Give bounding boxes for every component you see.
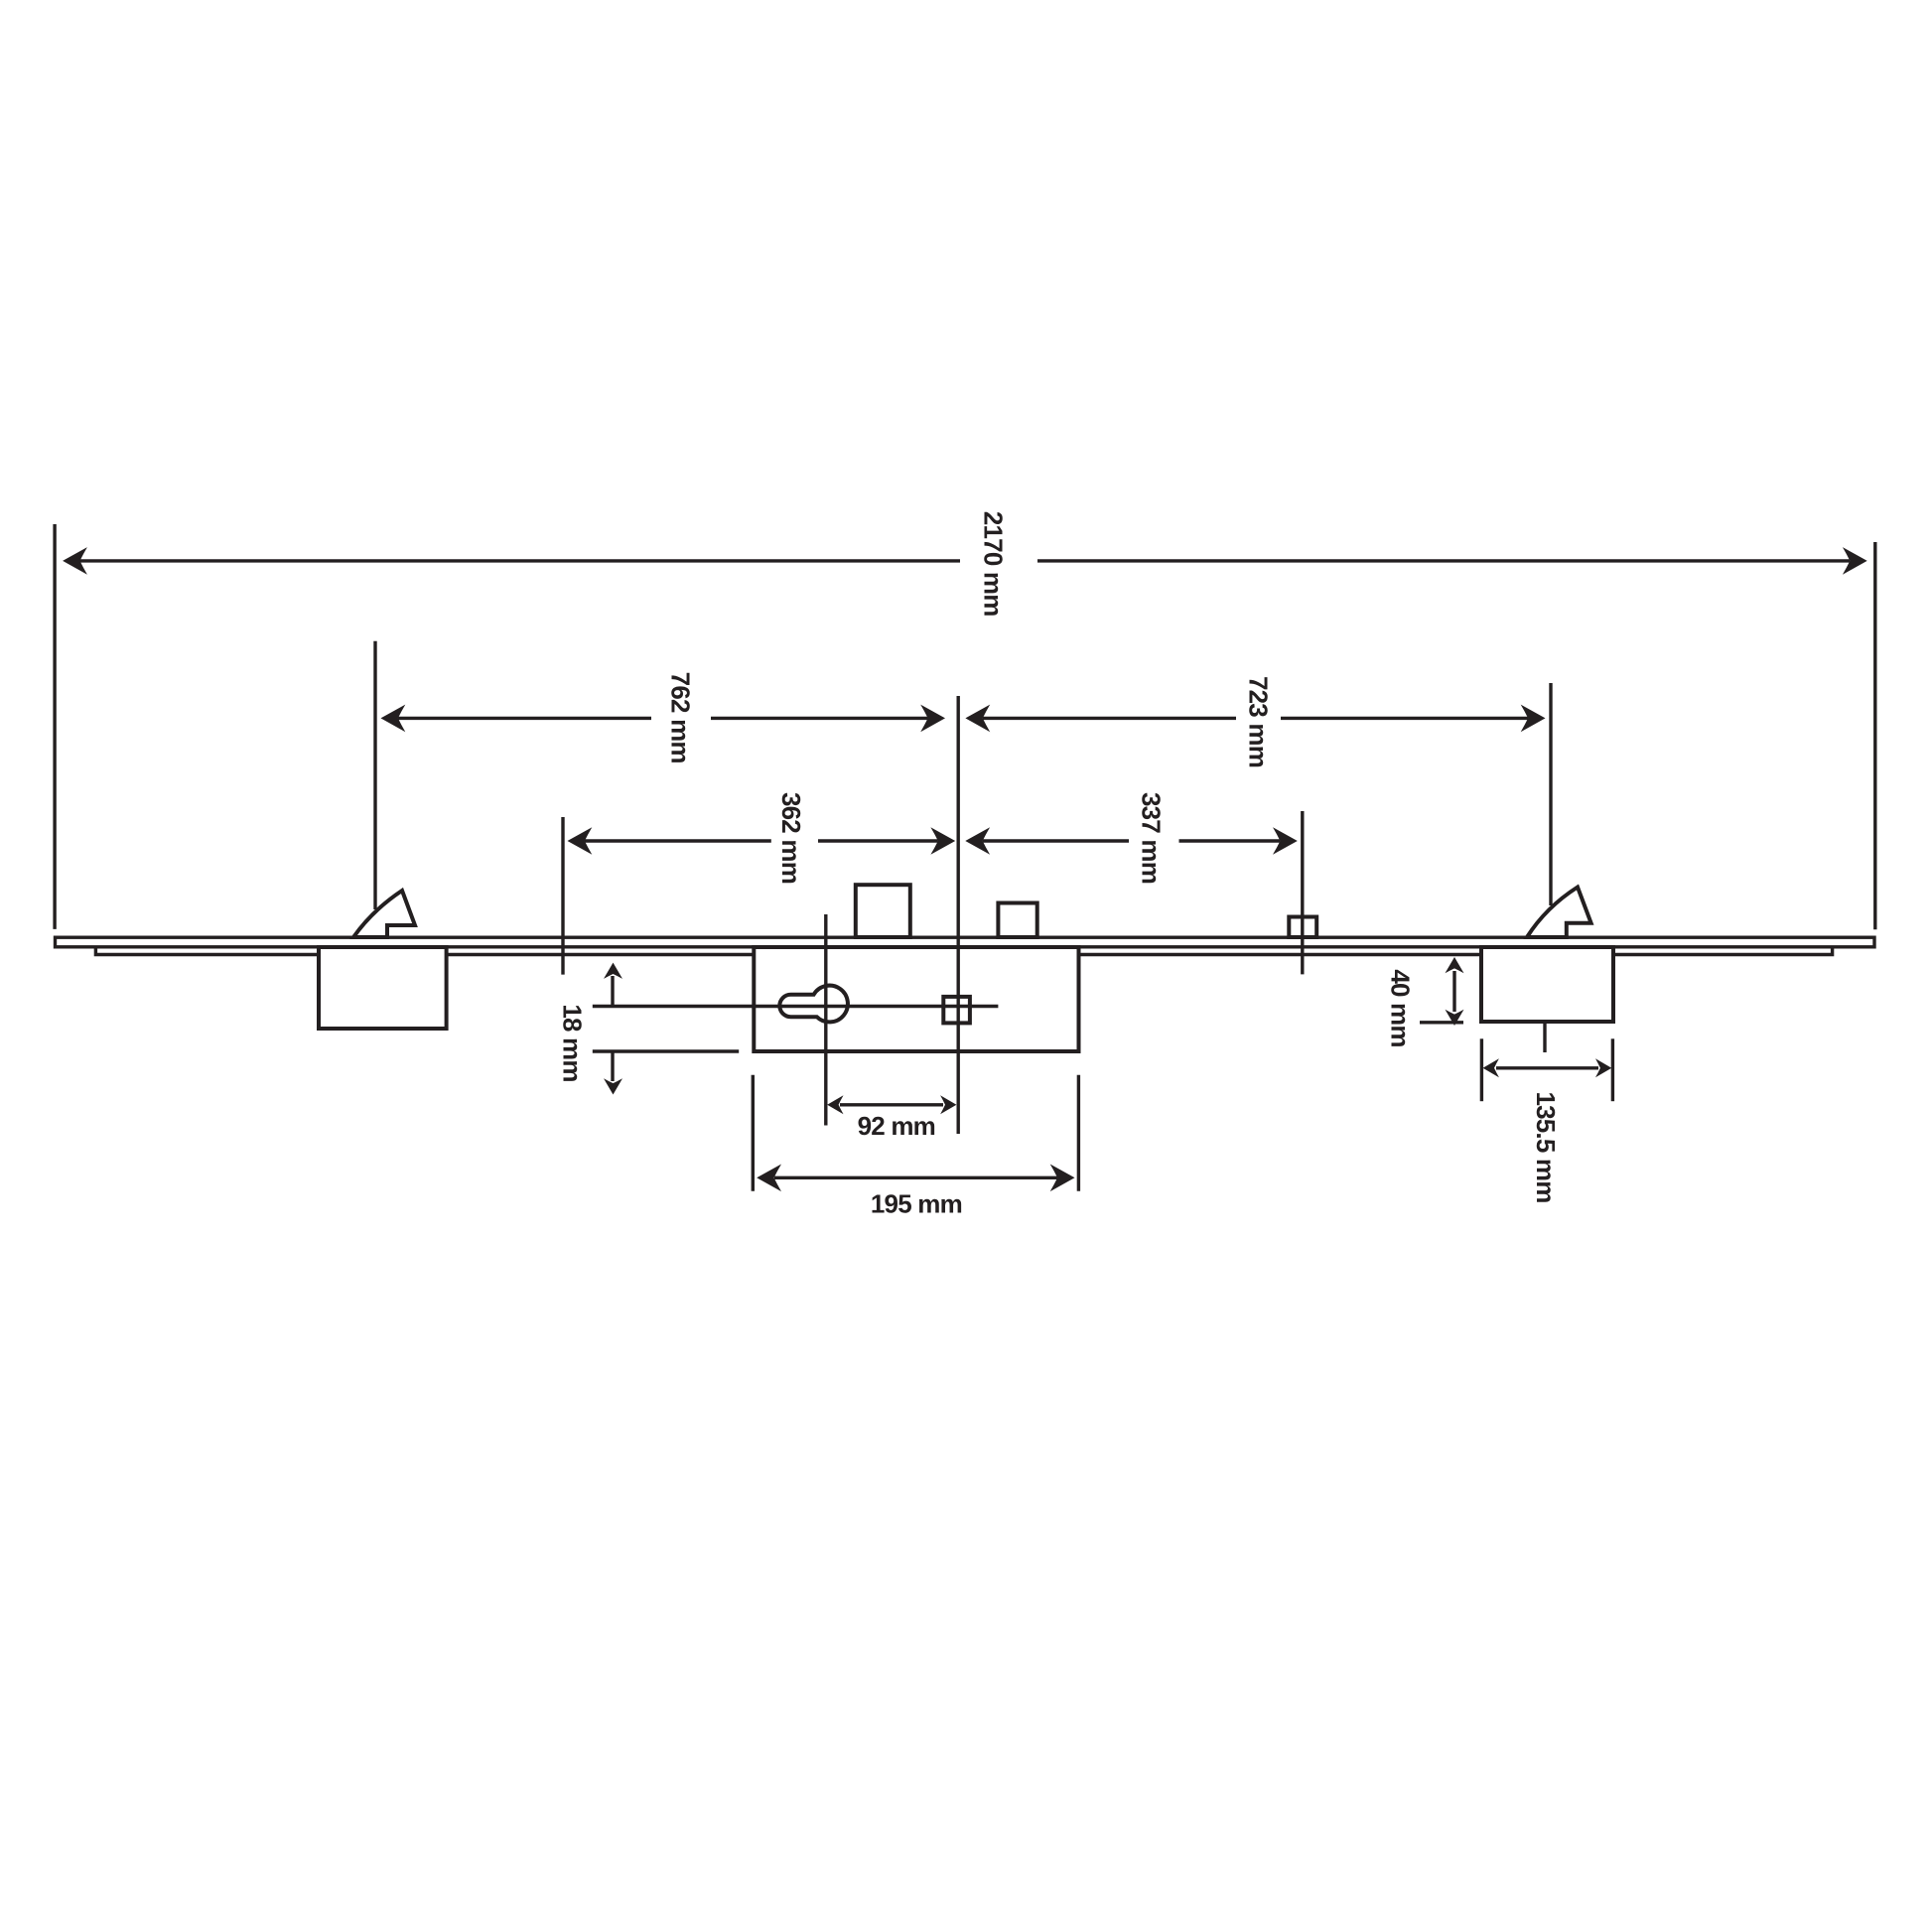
svg-text:762 mm: 762 mm (666, 672, 696, 763)
svg-text:92 mm: 92 mm (858, 1111, 935, 1141)
svg-text:337 mm: 337 mm (1137, 792, 1167, 884)
svg-text:40 mm: 40 mm (1386, 969, 1416, 1046)
svg-text:195 mm: 195 mm (871, 1189, 962, 1219)
svg-text:135.5 mm: 135.5 mm (1531, 1091, 1561, 1202)
svg-text:362 mm: 362 mm (776, 792, 806, 884)
svg-text:723 mm: 723 mm (1243, 676, 1273, 767)
svg-text:18 mm: 18 mm (557, 1004, 587, 1081)
svg-text:2170 mm: 2170 mm (979, 511, 1009, 617)
